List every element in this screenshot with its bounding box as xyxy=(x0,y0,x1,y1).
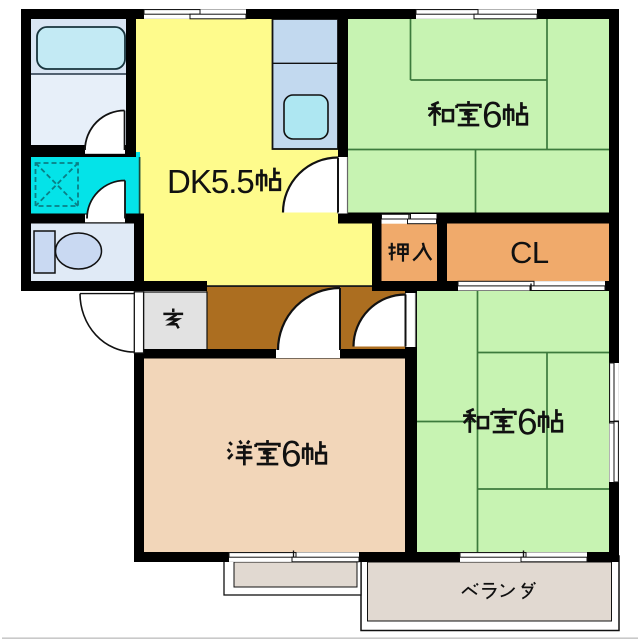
svg-text:CL: CL xyxy=(510,235,549,270)
svg-text:6: 6 xyxy=(517,402,538,443)
svg-text:6: 6 xyxy=(482,95,503,136)
svg-text:6: 6 xyxy=(281,434,302,475)
svg-text:DK5.5: DK5.5 xyxy=(167,163,254,200)
